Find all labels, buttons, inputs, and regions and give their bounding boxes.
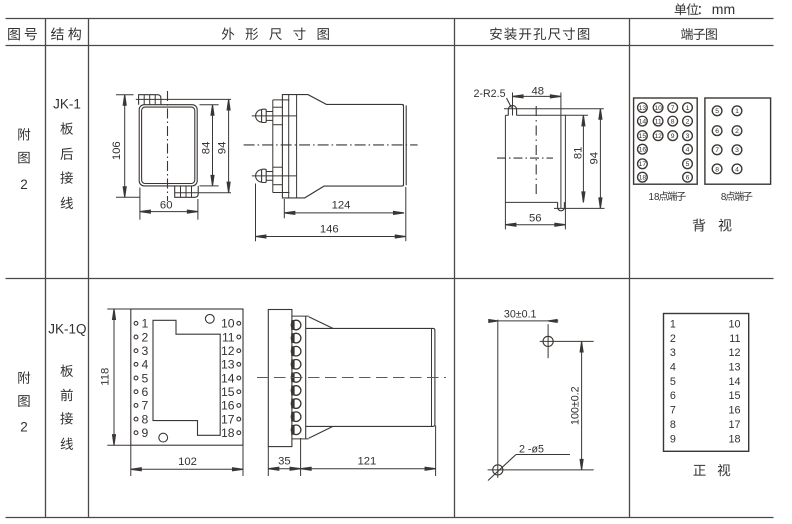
svg-text:5: 5 [686, 161, 690, 168]
svg-text:6: 6 [686, 175, 690, 182]
svg-text:16: 16 [639, 147, 647, 154]
svg-text:5: 5 [715, 108, 719, 115]
svg-text:7: 7 [142, 399, 149, 413]
svg-text:5: 5 [142, 371, 149, 385]
svg-text:12: 12 [728, 347, 740, 359]
svg-text:16: 16 [221, 399, 235, 413]
svg-text:1: 1 [670, 319, 676, 331]
svg-text:2: 2 [670, 333, 676, 345]
svg-text:16: 16 [728, 405, 740, 417]
svg-text:30±0.1: 30±0.1 [504, 309, 537, 321]
svg-text:3: 3 [142, 344, 149, 358]
svg-text:6: 6 [142, 385, 149, 399]
svg-text:2: 2 [735, 128, 739, 135]
svg-text:2: 2 [142, 330, 149, 344]
svg-text:8: 8 [721, 192, 727, 203]
svg-text:3: 3 [686, 133, 690, 140]
svg-text:11: 11 [729, 333, 740, 345]
svg-text:9: 9 [671, 133, 675, 140]
svg-text:8: 8 [671, 119, 675, 126]
svg-text:35: 35 [278, 456, 291, 468]
svg-text:mm: mm [712, 1, 735, 17]
svg-text:15: 15 [639, 133, 647, 140]
svg-text:102: 102 [178, 456, 197, 468]
svg-text:3: 3 [670, 347, 676, 359]
svg-text:18: 18 [221, 426, 235, 440]
svg-text:94: 94 [589, 152, 601, 165]
svg-text:1: 1 [686, 105, 690, 112]
svg-text:9: 9 [142, 426, 149, 440]
svg-text:81: 81 [573, 147, 585, 160]
svg-text:7: 7 [715, 147, 719, 154]
svg-text:84: 84 [200, 142, 212, 155]
svg-text:8: 8 [715, 166, 719, 173]
svg-text:12: 12 [654, 133, 662, 140]
svg-text:3: 3 [735, 147, 739, 154]
svg-text:8: 8 [670, 419, 676, 431]
svg-text:2: 2 [686, 119, 690, 126]
svg-text:4: 4 [142, 358, 149, 372]
svg-text:118: 118 [99, 368, 111, 386]
svg-text:1: 1 [735, 108, 739, 115]
svg-text:18: 18 [728, 433, 740, 445]
svg-text:48: 48 [532, 85, 545, 97]
svg-text:2 -ø5: 2 -ø5 [519, 443, 544, 455]
svg-text:7: 7 [670, 405, 676, 417]
svg-text:13: 13 [221, 358, 235, 372]
svg-text:4: 4 [686, 147, 690, 154]
svg-text:2: 2 [20, 177, 28, 192]
svg-text:17: 17 [728, 419, 740, 431]
svg-text:56: 56 [529, 212, 542, 224]
svg-text:100±0.2: 100±0.2 [569, 386, 581, 425]
svg-text:6: 6 [670, 390, 676, 402]
svg-text:60: 60 [160, 200, 173, 212]
svg-text:14: 14 [728, 376, 740, 388]
svg-text:18: 18 [639, 175, 647, 182]
svg-text:15: 15 [221, 385, 235, 399]
svg-text:7: 7 [671, 105, 675, 112]
svg-text:5: 5 [670, 376, 676, 388]
svg-text:2-R2.5: 2-R2.5 [473, 88, 505, 100]
svg-text:10: 10 [221, 317, 235, 331]
svg-text:1: 1 [142, 317, 149, 331]
svg-text:17: 17 [221, 412, 235, 426]
svg-text:4: 4 [670, 362, 676, 374]
svg-text:12: 12 [221, 344, 235, 358]
svg-text:14: 14 [221, 371, 235, 385]
svg-text:146: 146 [320, 223, 339, 235]
svg-text:JK-1: JK-1 [53, 97, 81, 112]
svg-text:124: 124 [332, 200, 351, 212]
svg-text:9: 9 [670, 433, 676, 445]
svg-text:13: 13 [728, 362, 740, 374]
svg-text:121: 121 [357, 456, 376, 468]
svg-text:10: 10 [654, 105, 662, 112]
svg-text:4: 4 [735, 166, 739, 173]
svg-text:94: 94 [217, 142, 229, 155]
svg-text:JK-1Q: JK-1Q [48, 322, 86, 337]
svg-text:2: 2 [20, 420, 28, 435]
svg-text:17: 17 [639, 161, 647, 168]
svg-text:11: 11 [655, 119, 662, 126]
svg-text:18: 18 [649, 192, 660, 203]
svg-text:8: 8 [142, 412, 149, 426]
svg-text:15: 15 [728, 390, 740, 402]
svg-text:106: 106 [111, 141, 123, 160]
svg-text:13: 13 [639, 105, 647, 112]
svg-text:14: 14 [639, 119, 647, 126]
svg-text:6: 6 [715, 128, 719, 135]
svg-text:11: 11 [222, 330, 235, 344]
svg-text:10: 10 [728, 319, 740, 331]
